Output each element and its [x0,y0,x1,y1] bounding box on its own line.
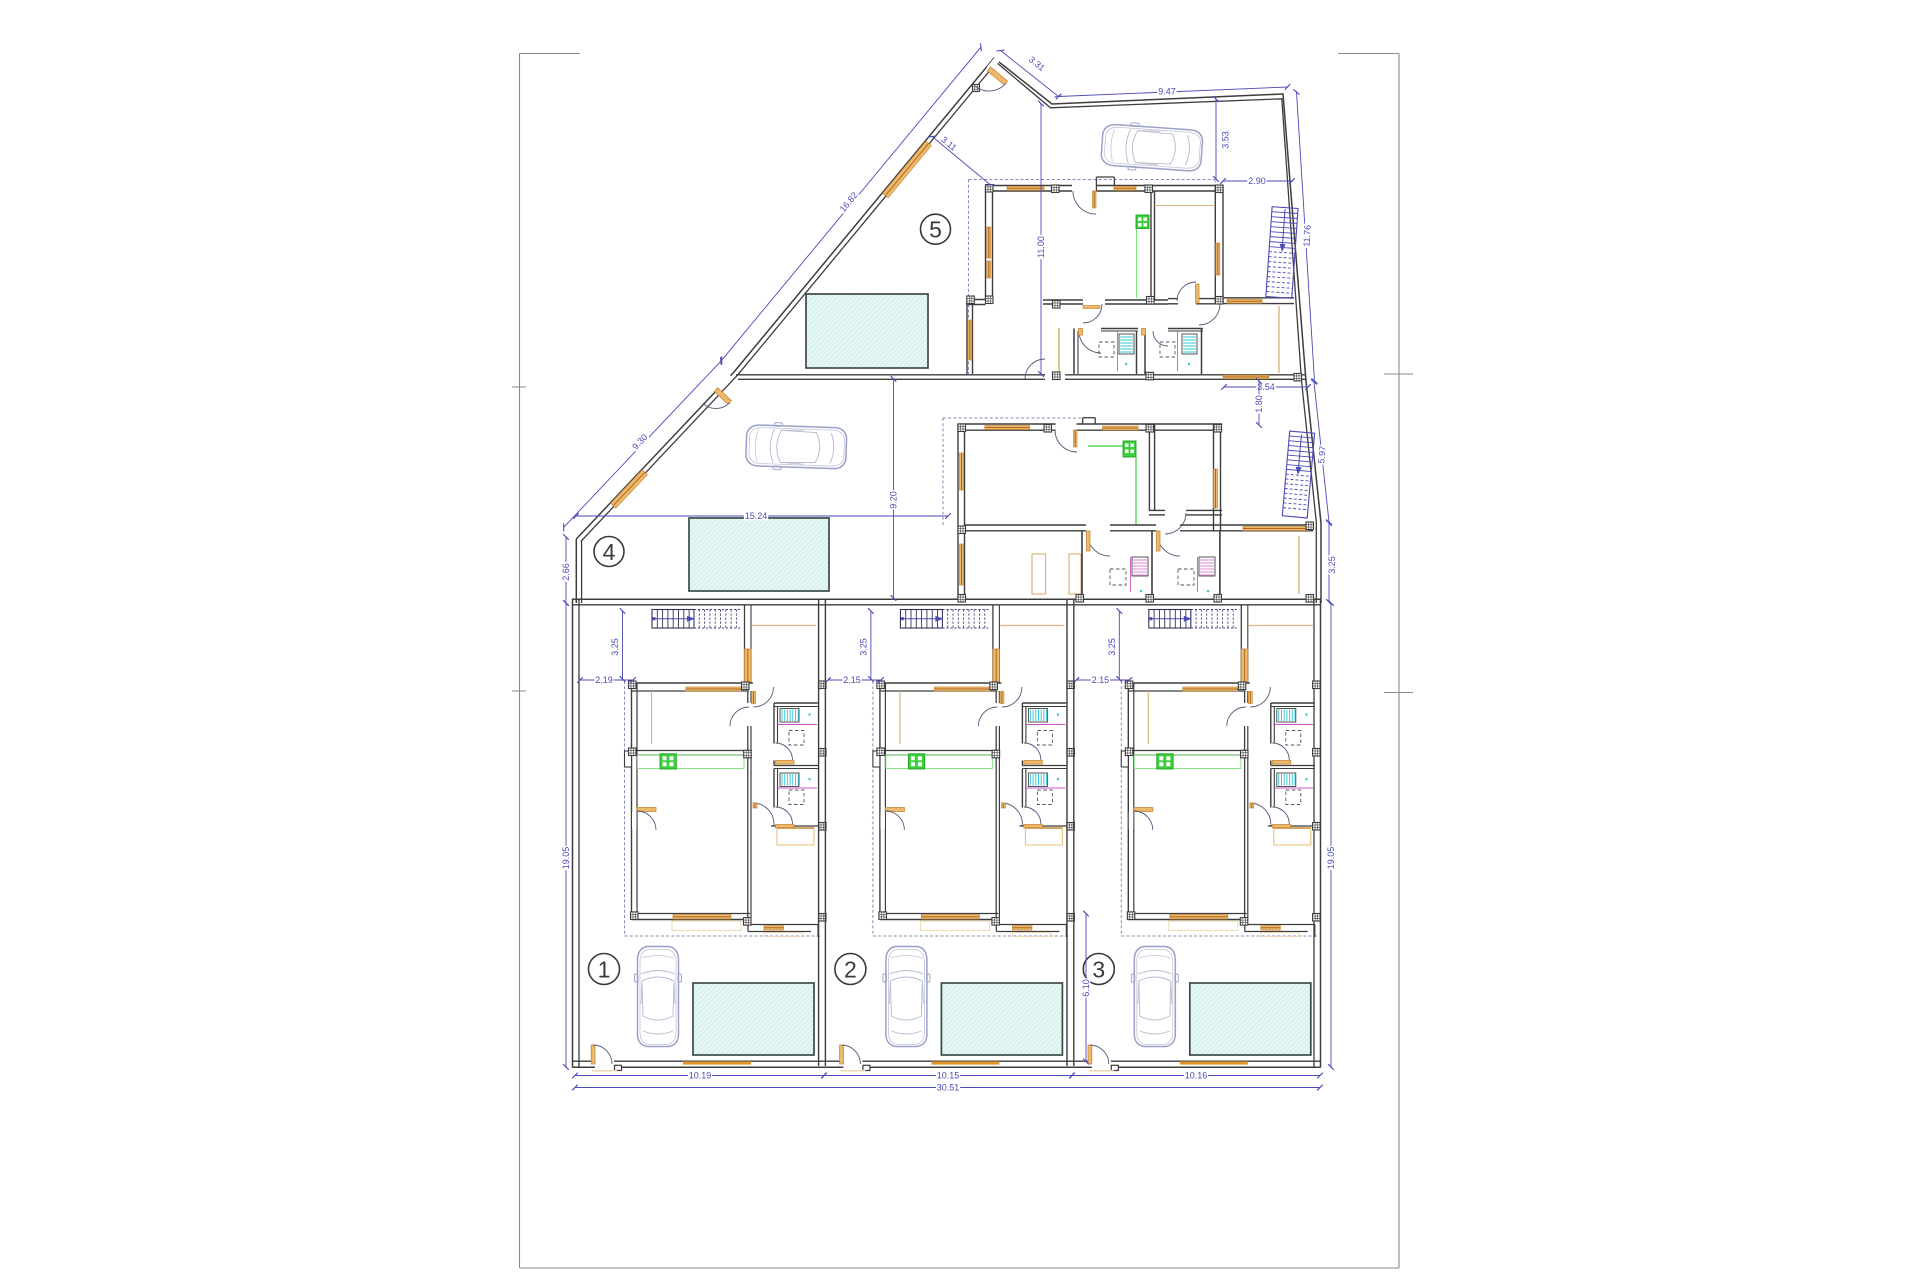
svg-text:2: 2 [844,957,857,983]
svg-text:11.00: 11.00 [1036,236,1046,258]
svg-text:3.25: 3.25 [858,638,868,656]
svg-text:2.66: 2.66 [561,563,571,581]
svg-text:10.15: 10.15 [937,1071,960,1081]
svg-text:1.80: 1.80 [1254,395,1264,413]
svg-text:4: 4 [603,539,616,565]
svg-text:19.05: 19.05 [1326,847,1336,870]
svg-text:30.51: 30.51 [937,1083,960,1093]
svg-text:2.15: 2.15 [1092,675,1110,685]
svg-text:3.25: 3.25 [1327,556,1337,574]
svg-text:2.15: 2.15 [843,675,861,685]
svg-text:15.24: 15.24 [745,511,768,521]
svg-text:9.20: 9.20 [889,491,899,509]
svg-text:11.76: 11.76 [1301,225,1312,247]
svg-text:2.19: 2.19 [595,675,613,685]
svg-text:2.90: 2.90 [1248,176,1266,186]
svg-text:3: 3 [1092,957,1105,983]
svg-text:9.47: 9.47 [1158,87,1176,97]
svg-text:3.25: 3.25 [610,638,620,656]
svg-text:5: 5 [929,217,942,243]
svg-text:10.19: 10.19 [689,1071,712,1081]
svg-text:10.16: 10.16 [1185,1071,1208,1081]
svg-text:6.10: 6.10 [1081,979,1091,997]
svg-text:5.97: 5.97 [1316,445,1328,463]
svg-text:1: 1 [598,957,611,983]
svg-text:3.53: 3.53 [1221,131,1231,149]
svg-text:3.54: 3.54 [1257,382,1275,392]
svg-text:3.25: 3.25 [1107,638,1117,656]
svg-text:19.05: 19.05 [561,847,571,870]
